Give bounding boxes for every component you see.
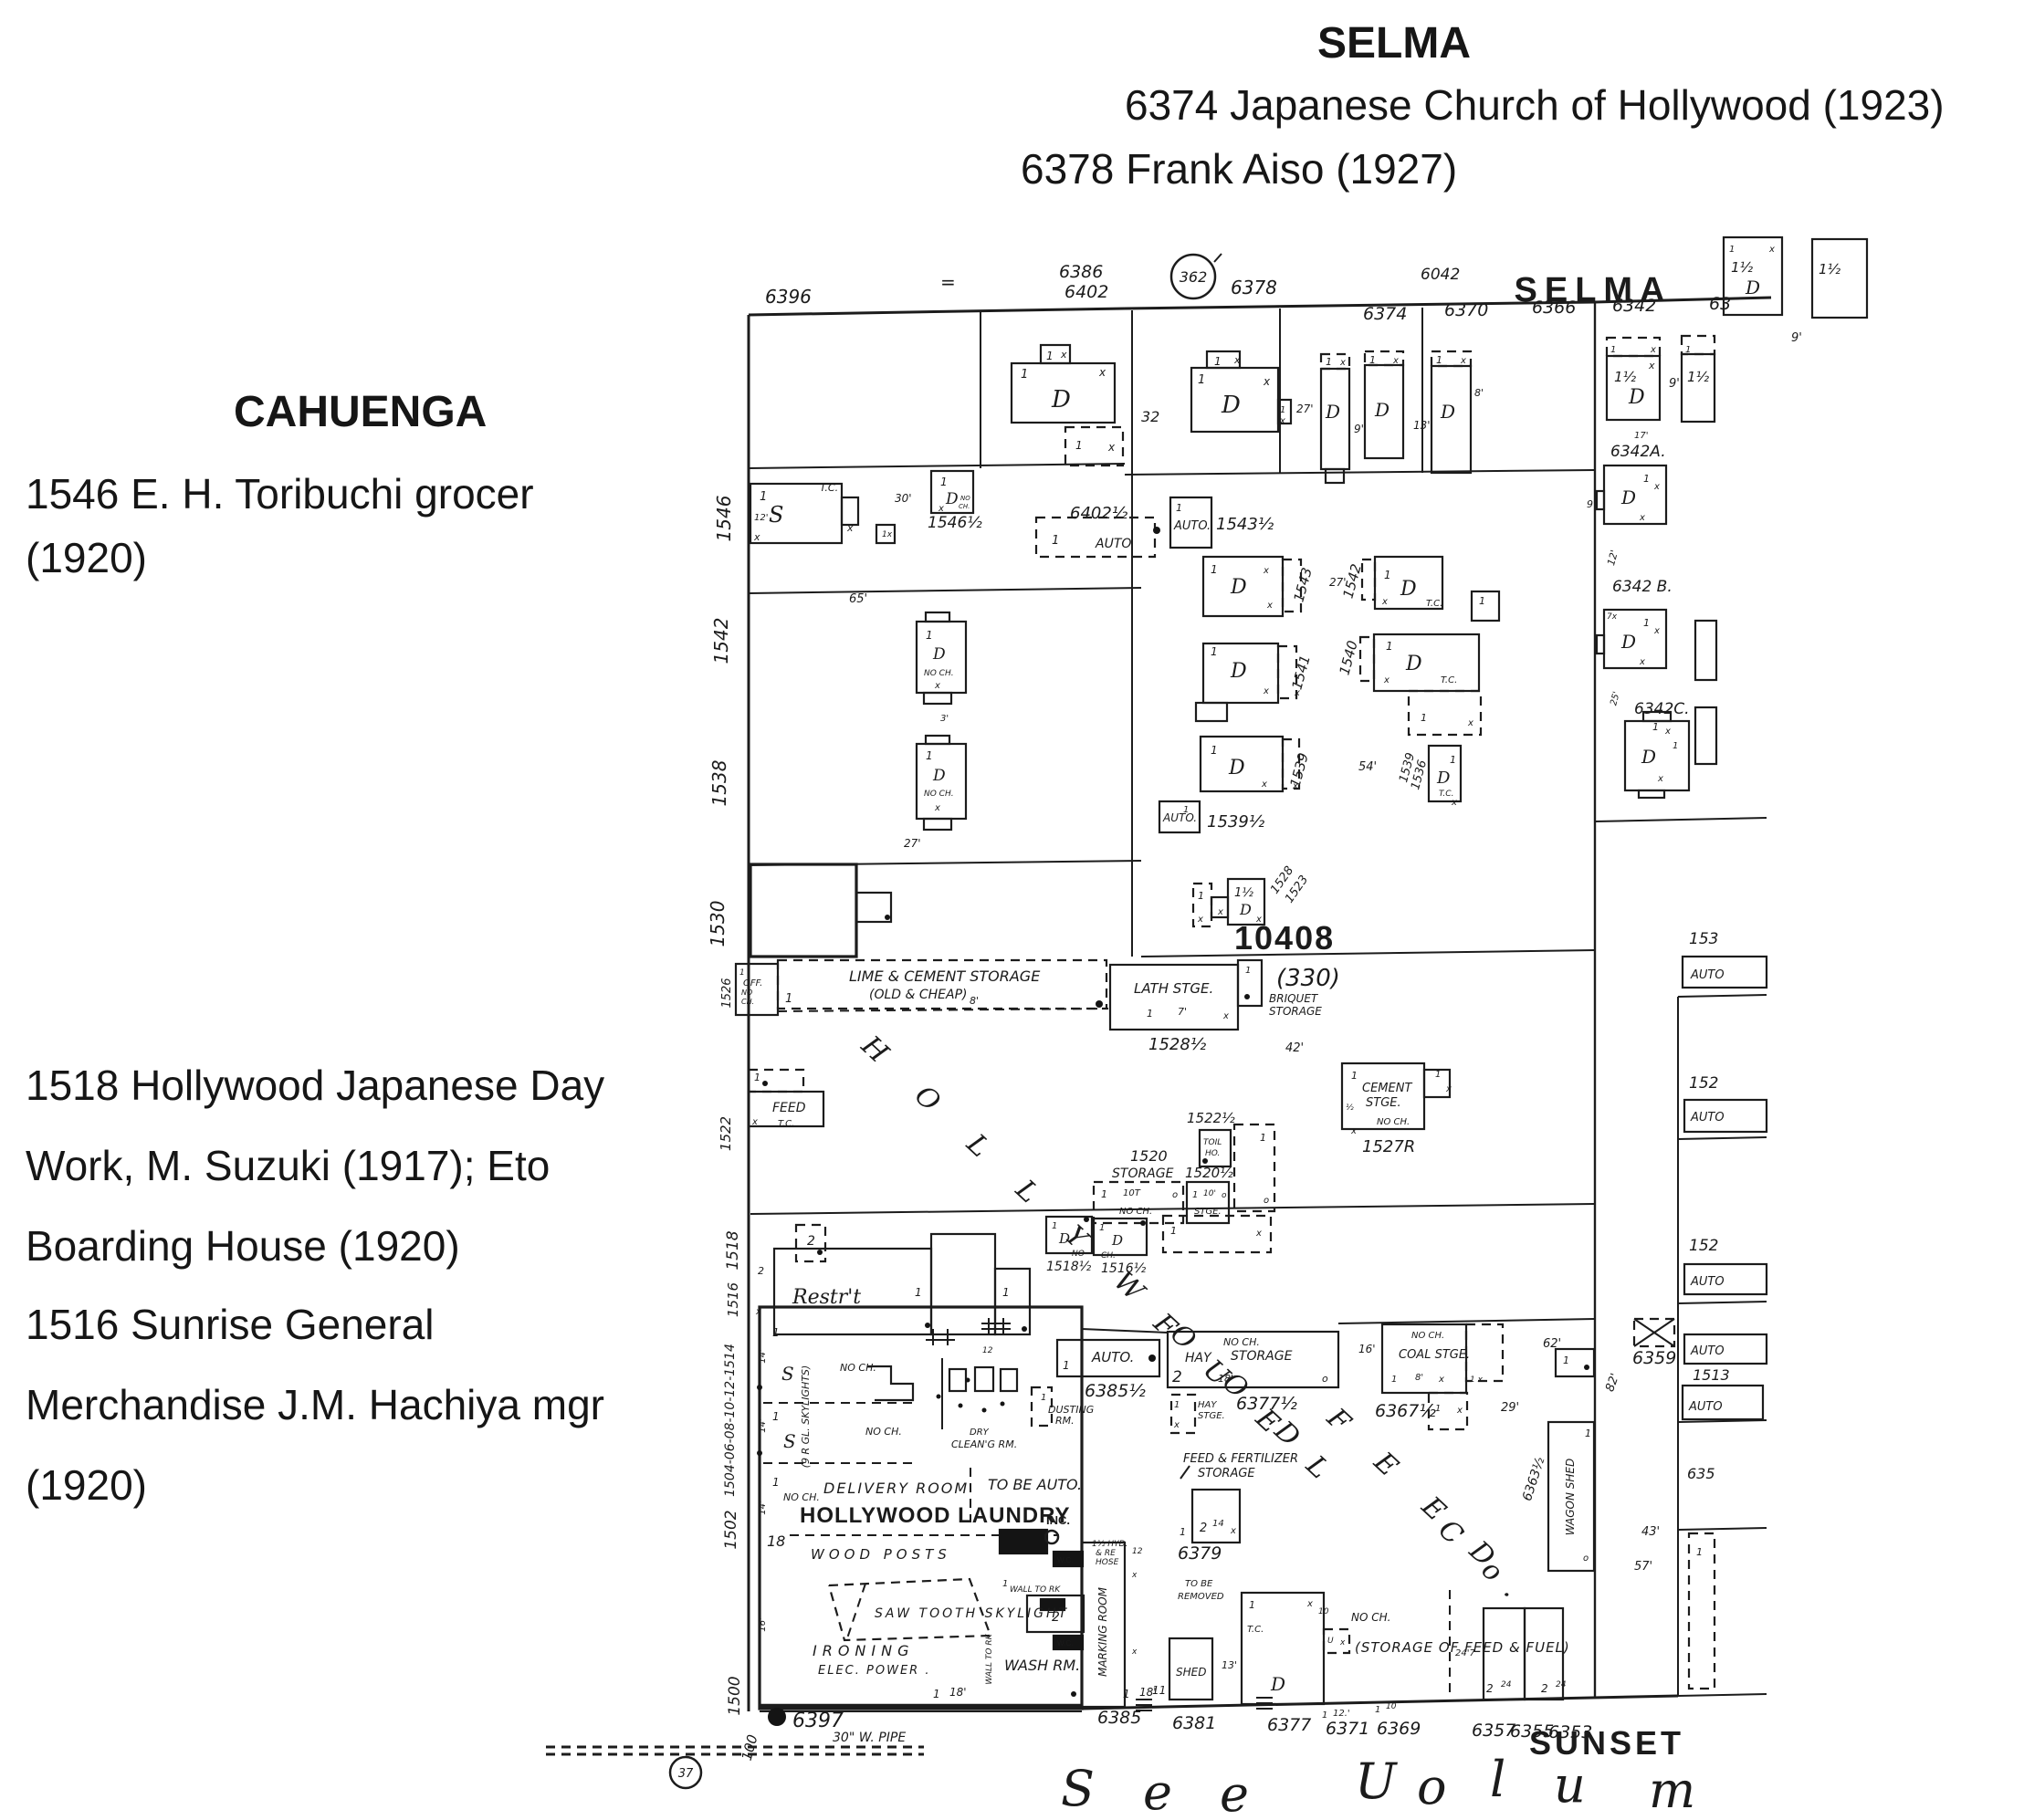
map-label: 1: [1280, 405, 1285, 415]
map-label: x: [938, 504, 944, 514]
map-line: [1141, 950, 1595, 957]
map-label: 100: [739, 1733, 761, 1762]
map-building: [1597, 491, 1604, 509]
map-building: [931, 1234, 995, 1334]
map-label: 6385: [1097, 1708, 1141, 1728]
map-label: x: [1664, 727, 1671, 737]
map-label: 9': [1587, 498, 1596, 510]
map-label: 1: [1610, 345, 1616, 355]
map-label: 24: [1501, 1680, 1512, 1689]
map-label: DRY: [970, 1428, 990, 1438]
map-label: AUTO.: [1173, 519, 1211, 533]
map-building: [949, 1369, 966, 1391]
map-building: [926, 612, 949, 622]
map-label: 1: [1386, 640, 1393, 653]
map-label: 1: [1046, 350, 1054, 362]
map-label: 1: [1391, 1375, 1397, 1385]
map-label: 14': [758, 1501, 768, 1514]
map-label: 1: [760, 490, 767, 504]
map-label: AUTO: [1690, 968, 1725, 982]
map-label: D: [1270, 1673, 1285, 1695]
map-label: x: [1657, 774, 1663, 784]
map-label: TO BE: [1185, 1579, 1213, 1589]
map-dot-marker: [1140, 1220, 1146, 1226]
map-label: 2: [1486, 1682, 1494, 1695]
map-label: 1: [1183, 805, 1189, 815]
map-label: STGE.: [1366, 1096, 1401, 1110]
map-label: 1: [1211, 563, 1218, 576]
map-label: u: [1554, 1756, 1586, 1814]
map-label: 6378: [1231, 277, 1277, 298]
map-label: 6386: [1059, 262, 1103, 282]
map-line: [1595, 818, 1767, 821]
map-line: [749, 309, 1125, 315]
map-label: C o.: [1432, 1513, 1536, 1614]
map-label: 6369: [1377, 1719, 1421, 1739]
map-label: D: [1641, 746, 1656, 768]
map-label: D: [1745, 277, 1760, 298]
map-label: AUTO.: [1091, 1349, 1134, 1365]
map-building: [1695, 621, 1716, 680]
map-label: NO CH.: [924, 790, 954, 799]
map-label: 1: [1369, 354, 1376, 366]
map-label: 1: [1176, 502, 1182, 514]
map-line: [1678, 1137, 1767, 1139]
map-label: BRIQUET: [1269, 992, 1319, 1005]
map-label: IRONING: [813, 1642, 914, 1659]
map-label: 12: [982, 1346, 993, 1355]
map-label: 7x: [1607, 612, 1618, 622]
map-building: [1597, 635, 1604, 654]
map-label: 1½: [1819, 261, 1841, 277]
map-label: D: [1620, 486, 1636, 508]
water-pipe-label: 30" W. PIPE: [833, 1731, 906, 1745]
map-label: 18': [1218, 1373, 1233, 1385]
map-label: 1542: [710, 618, 732, 664]
map-label: Restr't: [792, 1286, 861, 1309]
map-solid-block: [1000, 1530, 1047, 1553]
map-building: [1466, 1324, 1503, 1381]
map-line: [1125, 470, 1595, 475]
map-label: 1: [1198, 373, 1205, 387]
map-line: [847, 1584, 865, 1638]
map-label: STGE.: [1198, 1411, 1225, 1421]
map-label: WALL TO RK: [985, 1633, 994, 1684]
map-label: 1: [940, 476, 948, 488]
map-label: 6366: [1532, 298, 1576, 318]
map-label: 1: [1041, 1393, 1046, 1403]
map-label: x: [934, 681, 940, 691]
map-label: 1: [1563, 1355, 1569, 1366]
map-label: x: [1383, 675, 1390, 685]
map-label: 30': [895, 492, 912, 505]
map-label: x: [1060, 349, 1067, 361]
map-label: 1 x: [1470, 1375, 1484, 1385]
map-label: STORAGE: [1198, 1467, 1255, 1480]
map-label: NO CH.: [865, 1426, 902, 1438]
map-label: MARKING ROOM: [1096, 1586, 1109, 1677]
map-label: 1527R: [1362, 1137, 1415, 1156]
map-label: T.C.: [1426, 599, 1442, 609]
map-label: 62': [1543, 1337, 1561, 1351]
map-label: 12': [1605, 549, 1620, 567]
map-label: x: [1266, 601, 1273, 611]
map-label: WOOD POSTS: [811, 1546, 951, 1563]
map-label: 24: [1556, 1680, 1567, 1689]
map-building: [924, 819, 951, 830]
map-label: AUTO: [1688, 1400, 1723, 1414]
map-label: x: [1381, 597, 1388, 607]
map-label: NO: [741, 988, 752, 997]
map-label: INC.: [1046, 1513, 1070, 1527]
map-label: 362: [1180, 268, 1208, 286]
map-label: CH.: [959, 503, 970, 510]
map-label: 1530: [707, 901, 729, 947]
map-label: 54': [1358, 760, 1377, 774]
map-label: 10T: [1123, 1188, 1141, 1198]
map-label: 1546½: [928, 514, 982, 532]
map-label: 65': [849, 592, 867, 606]
map-label: LATH STGE.: [1134, 980, 1213, 997]
map-label: 1: [1652, 721, 1659, 733]
map-label: x: [1131, 1571, 1138, 1580]
map-dot-marker: [1148, 1355, 1156, 1362]
map-label: 1: [1123, 1688, 1130, 1700]
map-label: 1: [1351, 1070, 1358, 1082]
map-label: x: [1173, 1420, 1180, 1430]
hollywood-laundry-label: HOLLYWOOD LAUNDRY: [800, 1503, 1071, 1528]
map-label: 6363½: [1520, 1455, 1548, 1502]
map-building: [1360, 637, 1374, 681]
map-label: 9': [1354, 423, 1364, 435]
map-label: x: [1467, 718, 1473, 728]
map-label: WAGON SHED: [1564, 1459, 1577, 1535]
map-label: 1540: [1337, 639, 1361, 677]
map-label: HO.: [1205, 1149, 1220, 1158]
map-building: [1326, 469, 1344, 483]
map-label: 1522: [718, 1116, 734, 1151]
map-building: [1812, 239, 1867, 318]
map-label: D: [1111, 1232, 1123, 1249]
map-label: STORAGE: [1231, 1349, 1293, 1364]
map-label: SHED: [1176, 1666, 1206, 1679]
map-label: HOSE: [1096, 1558, 1119, 1567]
map-label: x: [751, 1117, 758, 1127]
map-label: 6342C.: [1634, 700, 1690, 718]
map-label: 1½: [1614, 369, 1637, 385]
map-building: [1187, 1182, 1229, 1223]
map-line: [1678, 1302, 1767, 1303]
map-label: o: [1222, 1191, 1227, 1200]
map-label: 1: [1729, 245, 1735, 255]
map-label: 18: [767, 1532, 785, 1550]
map-dot-marker: [757, 1385, 762, 1390]
map-building: [1110, 965, 1238, 1030]
map-label: D: [1230, 576, 1247, 599]
map-label: AUTO: [1690, 1111, 1725, 1124]
map-label: 6377: [1267, 1715, 1311, 1735]
map-label: x: [1650, 345, 1656, 355]
map-label: STORAGE: [1112, 1166, 1174, 1181]
map-line: [1678, 1420, 1767, 1422]
map-dot-marker: [1071, 1691, 1076, 1697]
map-label: 1520: [1130, 1147, 1168, 1165]
map-label: 6342 B.: [1612, 578, 1673, 596]
lot-number-10408: 10408: [1234, 919, 1335, 957]
map-label: NO CH.: [840, 1362, 876, 1374]
map-label: 1: [1326, 356, 1332, 368]
map-label: NO: [960, 495, 970, 502]
map-label: 16': [1358, 1343, 1376, 1355]
map-label: WASH RM.: [1004, 1657, 1080, 1674]
map-label: 1: [754, 1072, 760, 1083]
map-label: T.C.: [1247, 1625, 1264, 1635]
map-label: D: [1058, 1230, 1070, 1247]
map-label: 14': [758, 1349, 768, 1363]
map-label: 18': [949, 1686, 967, 1699]
map-label: 1: [1211, 645, 1218, 658]
map-label: x: [1230, 1526, 1236, 1536]
map-label: 1: [772, 1410, 780, 1423]
map-label: 1538: [708, 760, 730, 807]
map-label: x: [1648, 360, 1655, 371]
map-label: 1526: [720, 978, 734, 1008]
map-label: AUTO: [1690, 1344, 1725, 1358]
map-label: o: [1322, 1373, 1328, 1385]
map-label: 1: [1198, 890, 1204, 902]
map-label: x: [1261, 779, 1267, 790]
map-label: 1500: [726, 1676, 744, 1715]
map-label: 14': [758, 1418, 768, 1432]
map-label: 1: [1063, 1359, 1070, 1372]
map-label: NO: [1072, 1250, 1085, 1259]
map-label: AUTO: [1095, 537, 1131, 551]
map-building: [1472, 591, 1499, 621]
map-label: (9 R GL. SKYLIGHTS): [800, 1365, 812, 1469]
map-label: 1: [1436, 354, 1442, 366]
map-label: 2: [1172, 1368, 1182, 1386]
map-building: [1639, 790, 1664, 798]
map-label: 1: [1075, 439, 1083, 452]
map-label: 63: [1709, 294, 1731, 314]
map-label: DELIVERY ROOM: [823, 1480, 969, 1497]
map-label: x: [1460, 356, 1466, 366]
map-label: 24'7: [1455, 1648, 1475, 1658]
map-label: 1: [1245, 966, 1251, 976]
map-label: x: [755, 1307, 761, 1317]
map-label: 6377½: [1236, 1394, 1297, 1414]
map-building: [1001, 1369, 1017, 1391]
map-label: 1: [1673, 741, 1678, 751]
map-label: D: [932, 645, 946, 664]
map-building: [1556, 1349, 1594, 1376]
map-line: [1180, 1466, 1190, 1479]
map-line: [1678, 1528, 1767, 1530]
map-label: 1: [1174, 1400, 1180, 1410]
map-label: 1: [1099, 1223, 1105, 1233]
map-label: 6381: [1172, 1713, 1216, 1733]
map-label: CLEAN'G RM.: [951, 1438, 1017, 1450]
map-label: 6359: [1632, 1348, 1676, 1368]
map-label: 8': [1415, 1373, 1423, 1383]
map-label: 1543½: [1216, 515, 1274, 534]
map-label: 25': [1609, 690, 1622, 706]
map-label: 12': [754, 513, 768, 523]
map-label: 11: [1152, 1684, 1166, 1697]
map-label: 42': [1285, 1041, 1304, 1055]
map-label: x: [1339, 1638, 1346, 1647]
map-label: x: [1392, 356, 1399, 366]
map-line: [1338, 1319, 1595, 1323]
map-label: FEED & FERTILIZER: [1183, 1452, 1298, 1466]
map-label: 1528½: [1148, 1035, 1207, 1054]
map-label: x: [1350, 1126, 1357, 1136]
map-label: NO CH.: [783, 1491, 820, 1503]
map-label: D: [1440, 401, 1455, 423]
map-label: x: [1306, 1599, 1313, 1609]
map-label: x: [1255, 1229, 1262, 1239]
map-building: [750, 864, 856, 957]
map-label: x: [1438, 1375, 1444, 1385]
map-dot-marker: [966, 1378, 970, 1383]
map-label: x: [1217, 907, 1223, 917]
map-label: STORAGE: [1269, 1005, 1322, 1018]
map-label: CEMENT: [1362, 1082, 1412, 1095]
map-label: 635: [1687, 1465, 1715, 1482]
map-label: o: [1264, 1196, 1269, 1206]
map-label: x: [1131, 1647, 1138, 1657]
map-label: 9': [1669, 377, 1680, 391]
map-label: x: [1456, 1406, 1463, 1416]
map-label: x: [1222, 1011, 1229, 1021]
map-label: AUTO: [1690, 1275, 1725, 1289]
map-label: 1: [1249, 1599, 1255, 1611]
map-label: =: [940, 271, 956, 293]
map-label: 6042: [1421, 266, 1460, 284]
map-label: D: [1628, 386, 1645, 409]
map-label: W.C.: [1057, 1556, 1073, 1564]
map-dot-marker: [1096, 1000, 1103, 1008]
map-label: D: [1228, 757, 1245, 779]
map-label: NO CH.: [924, 669, 954, 678]
map-label: l: [1490, 1751, 1505, 1808]
map-label: 17': [1634, 431, 1648, 441]
map-label: NO CH.: [1119, 1207, 1152, 1217]
map-label: 1: [1021, 368, 1028, 382]
map-label: 6402: [1064, 282, 1108, 302]
map-label: x: [846, 522, 854, 534]
map-label: D: [1221, 392, 1241, 419]
map-label: x: [1263, 566, 1269, 576]
map-building: [924, 693, 951, 704]
map-label: 6371: [1326, 1719, 1369, 1739]
map-dot-marker: [1584, 1365, 1589, 1370]
map-label: x: [1263, 375, 1271, 388]
map-label: 9': [1791, 331, 1802, 345]
map-label: 12.': [1333, 1709, 1350, 1719]
map-label: 1: [1643, 473, 1650, 485]
map-building: [1196, 703, 1227, 721]
map-label: SAW TOOTH SKYLIGHT: [875, 1606, 1069, 1621]
map-label: FEED: [772, 1101, 806, 1115]
map-label: x: [1107, 441, 1116, 454]
map-label: x: [1279, 416, 1285, 426]
map-line: [749, 588, 1141, 593]
sanborn-map-page: SELMA 6374 Japanese Church of Hollywood …: [0, 0, 2024, 1820]
map-label: 1516½: [1101, 1261, 1147, 1276]
map-label: 1½ HYD.: [1092, 1540, 1127, 1549]
map-label: 1: [1214, 355, 1222, 368]
map-label: 1: [1211, 744, 1218, 757]
map-label: 1: [1685, 345, 1691, 355]
map-dot-marker: [1084, 1217, 1089, 1222]
map-label: CH.: [741, 998, 754, 1006]
map-label: 1: [785, 992, 792, 1006]
map-label: 1546: [713, 496, 735, 542]
map-dot-marker: [1202, 1158, 1208, 1164]
map-label: WALL TO RK: [1010, 1585, 1061, 1595]
map-label: ELEC. POWER .: [818, 1664, 930, 1678]
map-label: m: [1649, 1762, 1695, 1819]
address-6397: 6397: [792, 1710, 844, 1732]
map-building: [1695, 707, 1716, 764]
map-label: x: [1653, 482, 1660, 492]
map-label: D: [1400, 578, 1417, 601]
map-label: 1: [1643, 617, 1650, 629]
map-label: 1516: [725, 1282, 741, 1317]
map-line: [1214, 254, 1222, 262]
map-label: 1: [1052, 1221, 1057, 1231]
map-label: 1: [1435, 1404, 1441, 1414]
map-label: U: [1327, 1637, 1334, 1646]
map-label: 32: [1141, 408, 1159, 425]
map-label: 13': [1413, 419, 1431, 432]
map-label: 8': [970, 995, 979, 1007]
map-label: x: [1639, 657, 1645, 667]
map-label: 1502: [722, 1510, 740, 1549]
map-label: 1504-06-08-10-12-1514: [723, 1344, 738, 1497]
map-label: 2: [807, 1234, 815, 1249]
map-label: COAL STGE.: [1399, 1348, 1470, 1362]
map-label: D: [1239, 901, 1252, 918]
map-label: 6367½: [1375, 1401, 1436, 1421]
map-building: [1682, 354, 1715, 422]
map-line: [750, 1204, 1595, 1214]
map-label: 1: [1375, 1705, 1380, 1715]
map-label: x: [1339, 358, 1346, 368]
map-label: D: [1230, 660, 1247, 683]
map-label: D: [1325, 401, 1340, 423]
map-label: 27': [1296, 403, 1314, 415]
map-dot-marker: [817, 1250, 823, 1255]
map-label: o: [1172, 1190, 1178, 1200]
map-label: 14: [1212, 1519, 1224, 1529]
map-label: 1: [1192, 1190, 1198, 1200]
map-label: 6342A.: [1610, 443, 1666, 461]
map-label: 6370: [1444, 300, 1488, 320]
map-label: NO CH.: [1411, 1331, 1444, 1341]
map-label: U: [1355, 1752, 1398, 1810]
map-label: 1: [1585, 1428, 1591, 1439]
map-label: 1: [1384, 569, 1391, 581]
map-label: D: [1436, 769, 1451, 788]
see-volume-script: S: [1061, 1760, 1095, 1817]
map-label: 1: [915, 1286, 922, 1299]
map-label: 2: [1541, 1682, 1548, 1695]
map-label: TOIL: [1203, 1138, 1222, 1147]
map-label: 1: [933, 1688, 940, 1700]
map-label: 1539: [1287, 751, 1312, 790]
